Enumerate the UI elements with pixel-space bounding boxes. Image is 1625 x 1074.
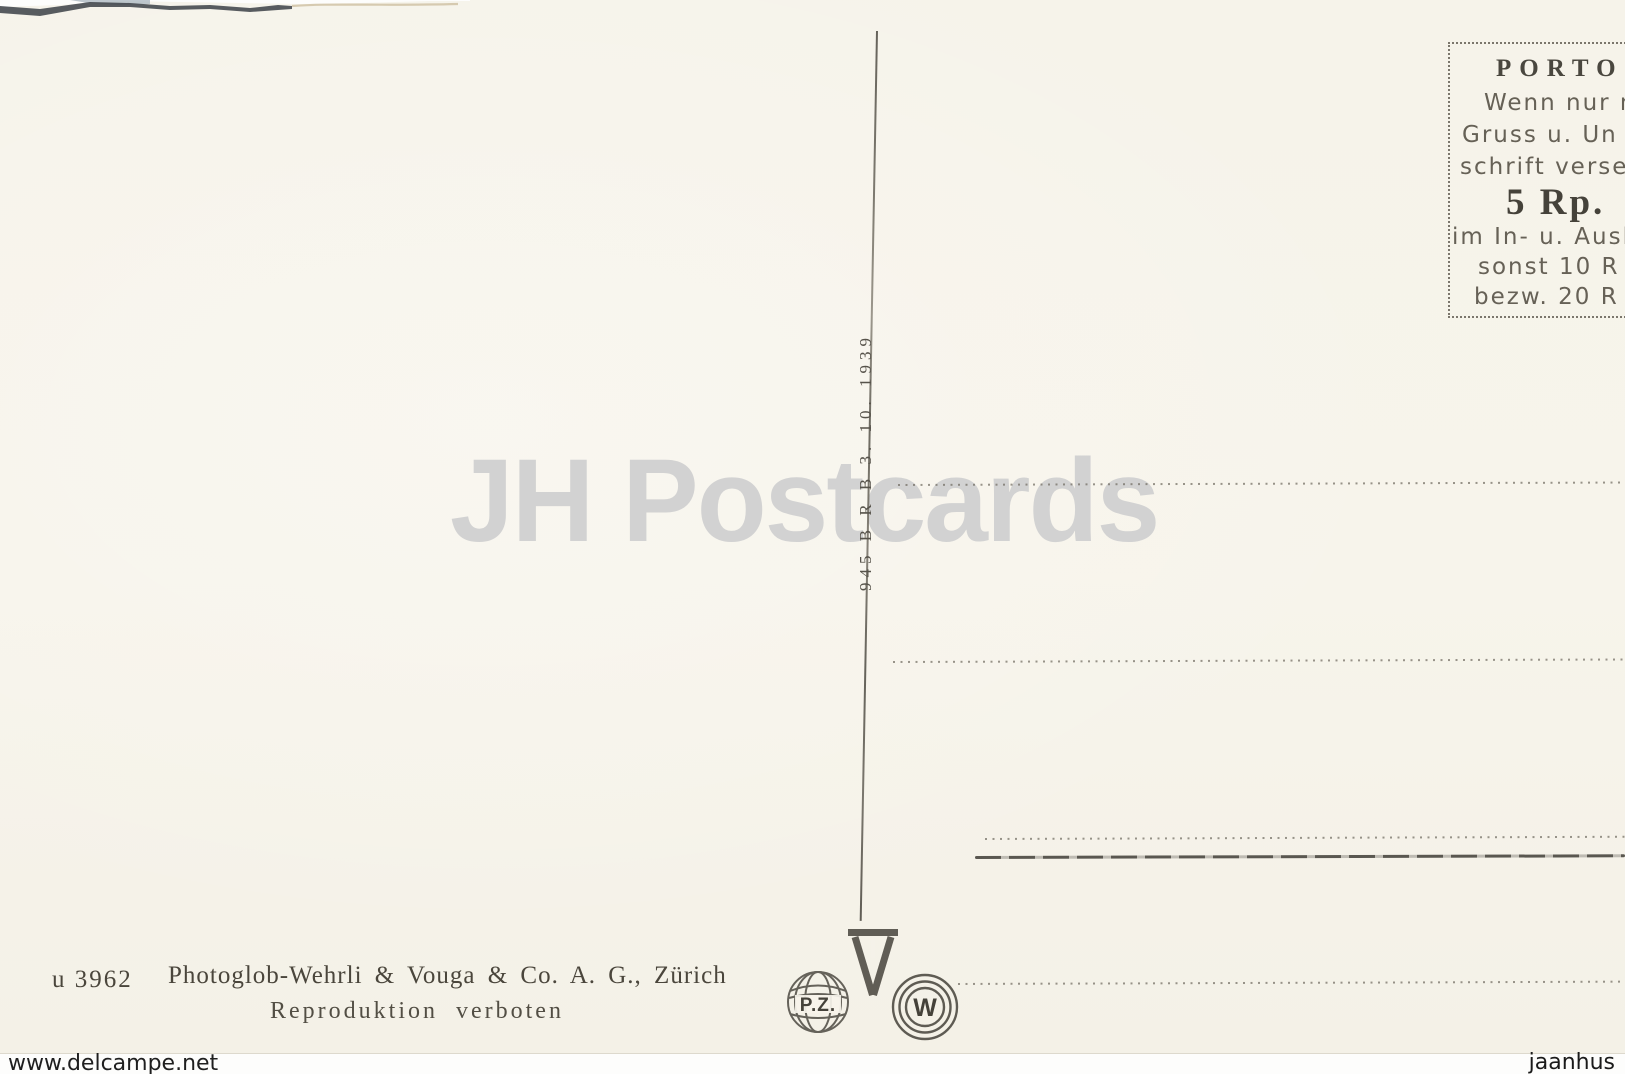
- reproduction-notice: Reproduktion verboten: [270, 998, 564, 1025]
- porto-stamp-box: PORTO Wenn nur m Gruss u. Un schrift ver…: [1448, 42, 1625, 318]
- porto-line-bezw: bezw. 20 R: [1450, 284, 1625, 310]
- w-logo-label: W: [913, 994, 937, 1022]
- porto-line-inland: im In- u. Ausl: [1450, 224, 1625, 250]
- porto-price: 5 Rp.: [1450, 182, 1625, 224]
- porto-line-schrift: schrift verse: [1450, 154, 1625, 180]
- porto-title: PORTO: [1450, 54, 1625, 84]
- wehrli-w-icon: W: [890, 972, 960, 1047]
- porto-line-sonst: sonst 10 R: [1450, 254, 1625, 280]
- pz-logo-label: P.Z.: [800, 995, 836, 1016]
- porto-line-gruss: Gruss u. Un: [1450, 122, 1625, 148]
- print-code-vertical: 945 B R B 3. 10. 1939: [856, 333, 876, 591]
- card-number: u 3962: [52, 966, 133, 994]
- scanned-postcard-back: JH Postcards 945 B R B 3. 10. 1939 PORTO…: [0, 0, 1625, 1074]
- torn-paper-edge: [0, 0, 470, 28]
- publisher-imprint: Photoglob-Wehrli & Vouga & Co. A. G., Zü…: [168, 962, 727, 990]
- seller-watermark-text: JH Postcards: [450, 442, 1158, 560]
- jaanhus-watermark: jaanhus: [1529, 1050, 1615, 1074]
- pz-globe-icon: P.Z.: [782, 966, 854, 1043]
- site-background-strip: [0, 1053, 1625, 1074]
- delcampe-watermark: www.delcampe.net: [8, 1051, 218, 1074]
- porto-line-wenn: Wenn nur m: [1450, 90, 1625, 116]
